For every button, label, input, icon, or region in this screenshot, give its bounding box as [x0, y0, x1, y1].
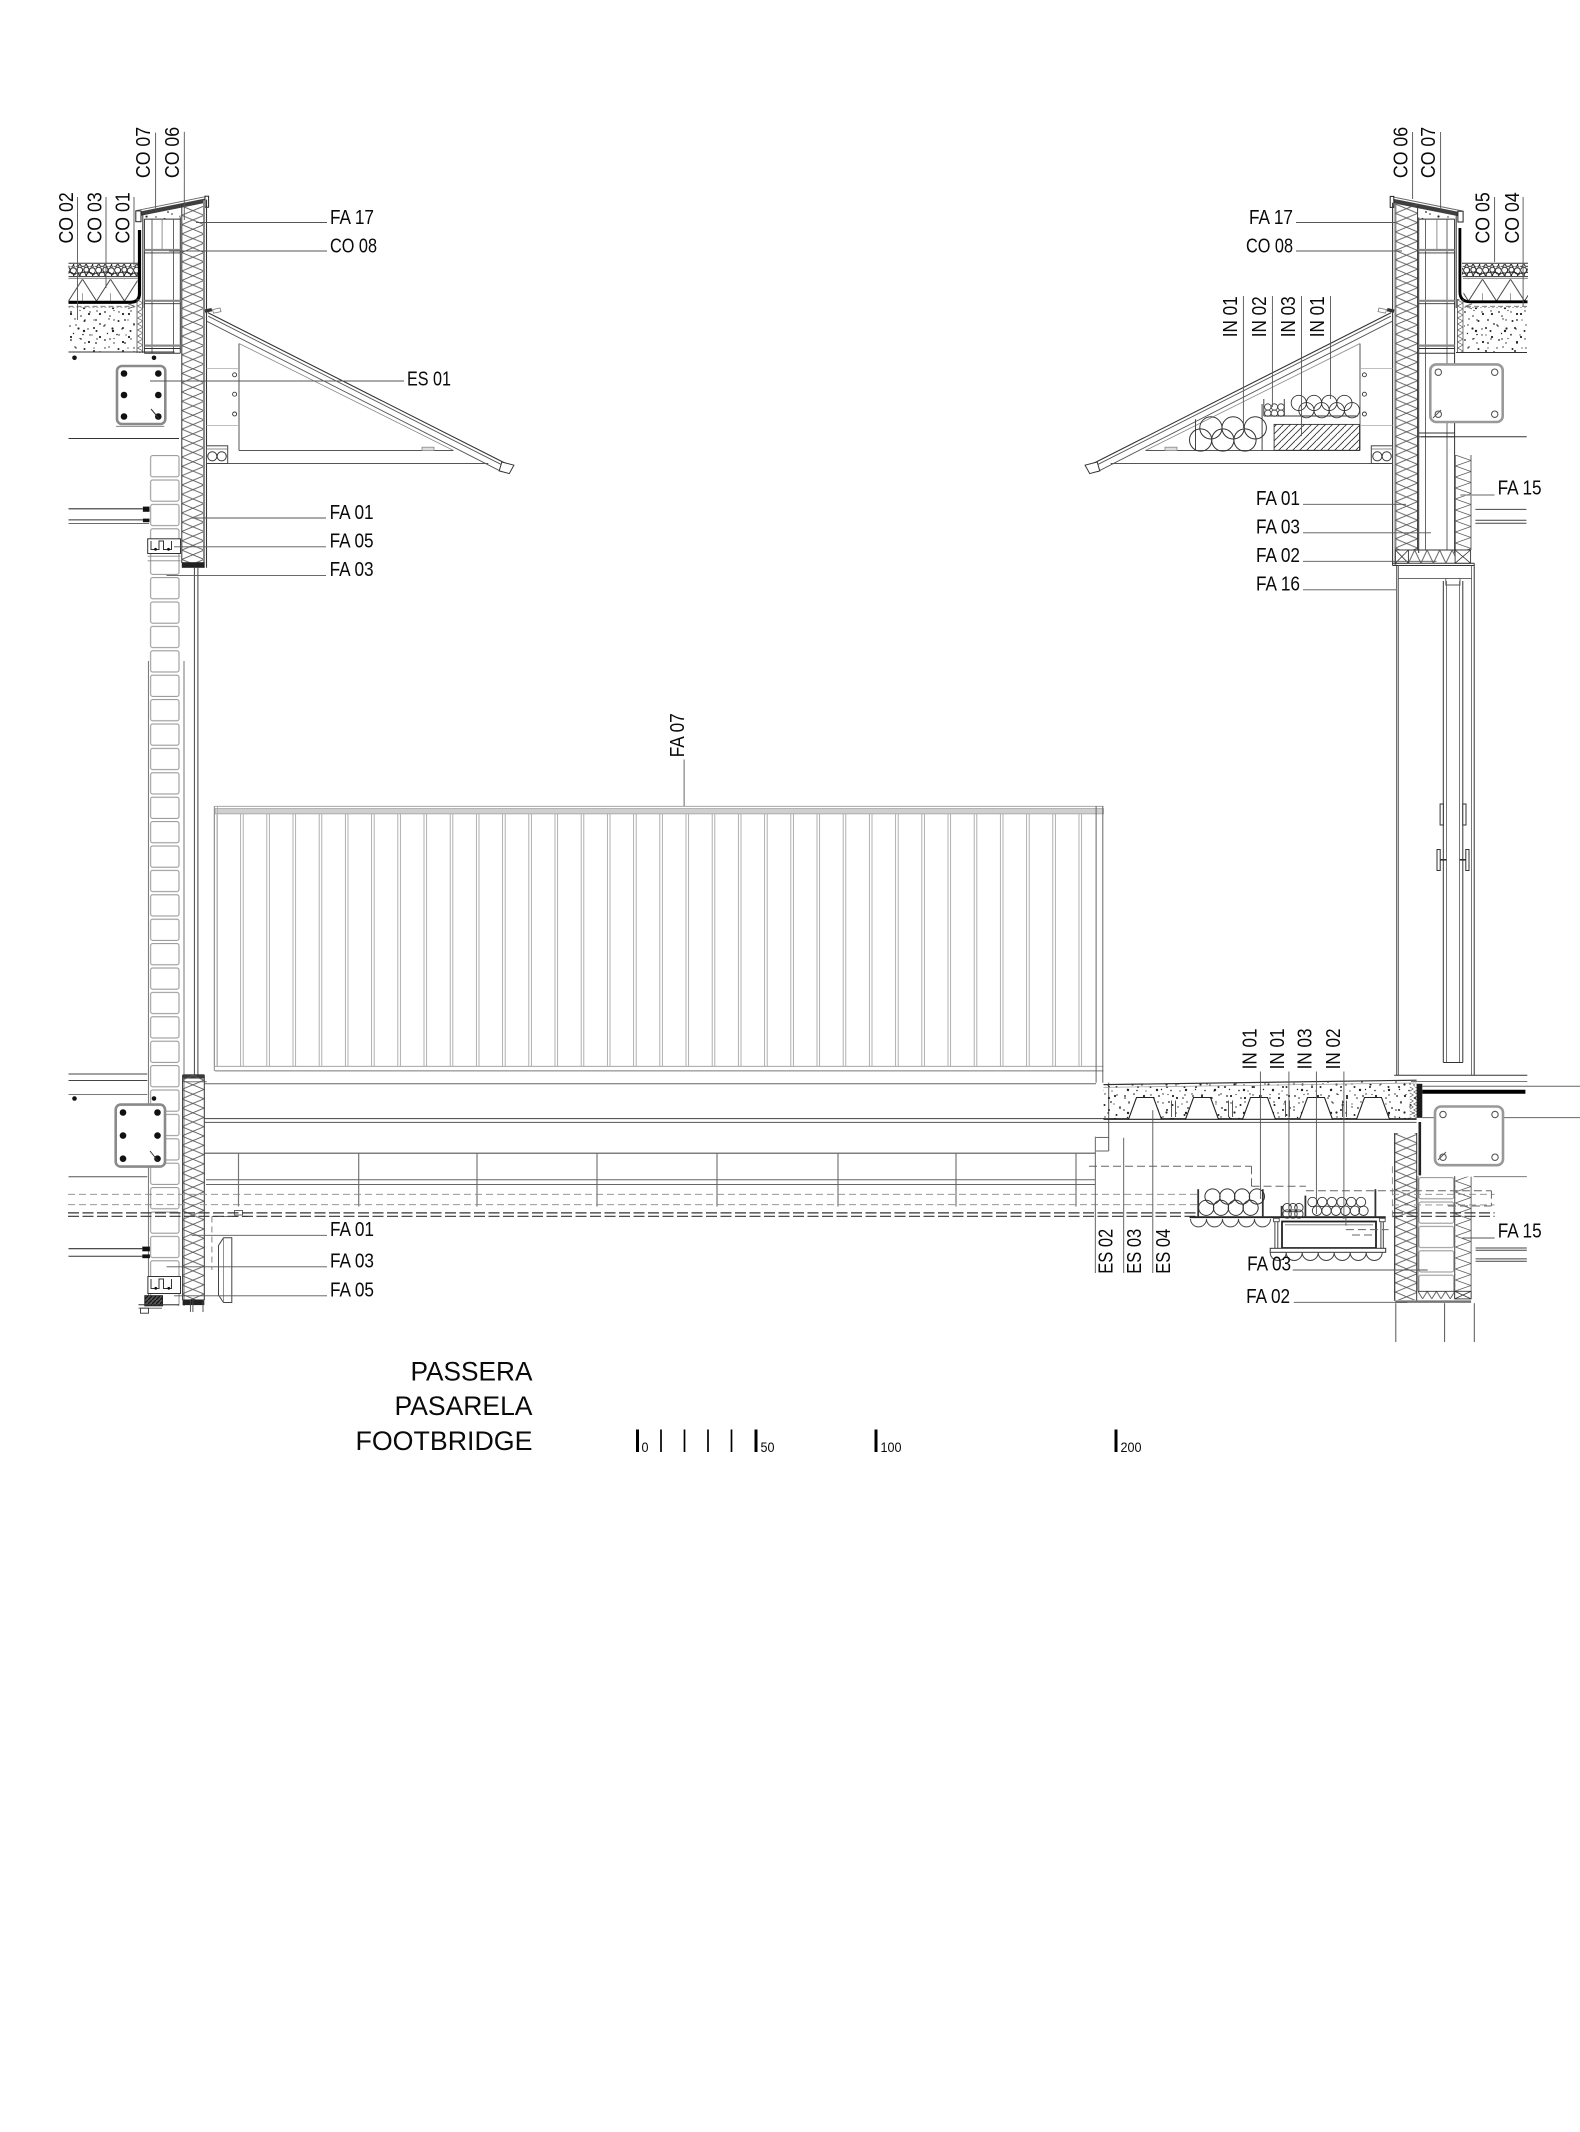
svg-text:FA 03: FA 03 — [1247, 1254, 1291, 1276]
svg-text:ES 01: ES 01 — [407, 369, 451, 391]
svg-text:FA 03: FA 03 — [1256, 517, 1300, 539]
svg-text:FA 02: FA 02 — [1246, 1286, 1290, 1308]
svg-text:FOOTBRIDGE: FOOTBRIDGE — [356, 1426, 533, 1456]
svg-text:FA 01: FA 01 — [330, 1219, 374, 1241]
svg-text:FA 05: FA 05 — [330, 1280, 374, 1302]
svg-text:FA 01: FA 01 — [1256, 488, 1300, 510]
svg-text:PASSERA: PASSERA — [411, 1356, 533, 1386]
svg-text:100: 100 — [881, 1440, 902, 1455]
svg-text:CO 08: CO 08 — [330, 236, 377, 258]
svg-text:FA 03: FA 03 — [330, 1251, 374, 1273]
svg-text:FA 17: FA 17 — [330, 207, 374, 229]
svg-text:200: 200 — [1121, 1440, 1142, 1455]
svg-text:CO 07: CO 07 — [1418, 127, 1440, 178]
svg-text:FA 03: FA 03 — [330, 559, 374, 581]
svg-text:CO 02: CO 02 — [56, 192, 78, 243]
svg-text:CO 07: CO 07 — [133, 127, 155, 178]
svg-text:CO 03: CO 03 — [85, 192, 107, 243]
svg-text:FA 07: FA 07 — [667, 713, 689, 757]
svg-text:ES 04: ES 04 — [1153, 1229, 1175, 1274]
svg-text:CO 04: CO 04 — [1502, 192, 1524, 243]
svg-text:IN 03: IN 03 — [1295, 1028, 1317, 1069]
svg-text:FA 17: FA 17 — [1249, 207, 1293, 229]
svg-text:CO 06: CO 06 — [1391, 127, 1413, 178]
svg-text:CO 08: CO 08 — [1246, 236, 1293, 258]
svg-text:CO 05: CO 05 — [1472, 192, 1494, 243]
svg-text:FA 15: FA 15 — [1498, 477, 1542, 499]
svg-text:ES 03: ES 03 — [1124, 1229, 1146, 1274]
svg-text:IN 02: IN 02 — [1323, 1028, 1345, 1069]
svg-text:FA 01: FA 01 — [330, 502, 374, 524]
svg-text:CO 06: CO 06 — [162, 127, 184, 178]
svg-text:ES 02: ES 02 — [1095, 1229, 1117, 1274]
svg-text:IN 02: IN 02 — [1249, 296, 1271, 337]
svg-text:FA 16: FA 16 — [1256, 574, 1300, 596]
svg-text:PASARELA: PASARELA — [395, 1391, 533, 1421]
svg-text:IN 01: IN 01 — [1307, 296, 1329, 337]
svg-text:0: 0 — [642, 1440, 649, 1455]
svg-text:50: 50 — [761, 1440, 775, 1455]
svg-text:IN 01: IN 01 — [1240, 1028, 1262, 1069]
svg-text:FA 02: FA 02 — [1256, 545, 1300, 567]
svg-text:FA 05: FA 05 — [330, 531, 374, 553]
svg-text:IN 03: IN 03 — [1278, 296, 1300, 337]
svg-text:FA 15: FA 15 — [1498, 1221, 1542, 1243]
svg-text:CO 01: CO 01 — [113, 192, 135, 243]
svg-text:IN 01: IN 01 — [1267, 1028, 1289, 1069]
svg-text:IN 01: IN 01 — [1220, 296, 1242, 337]
